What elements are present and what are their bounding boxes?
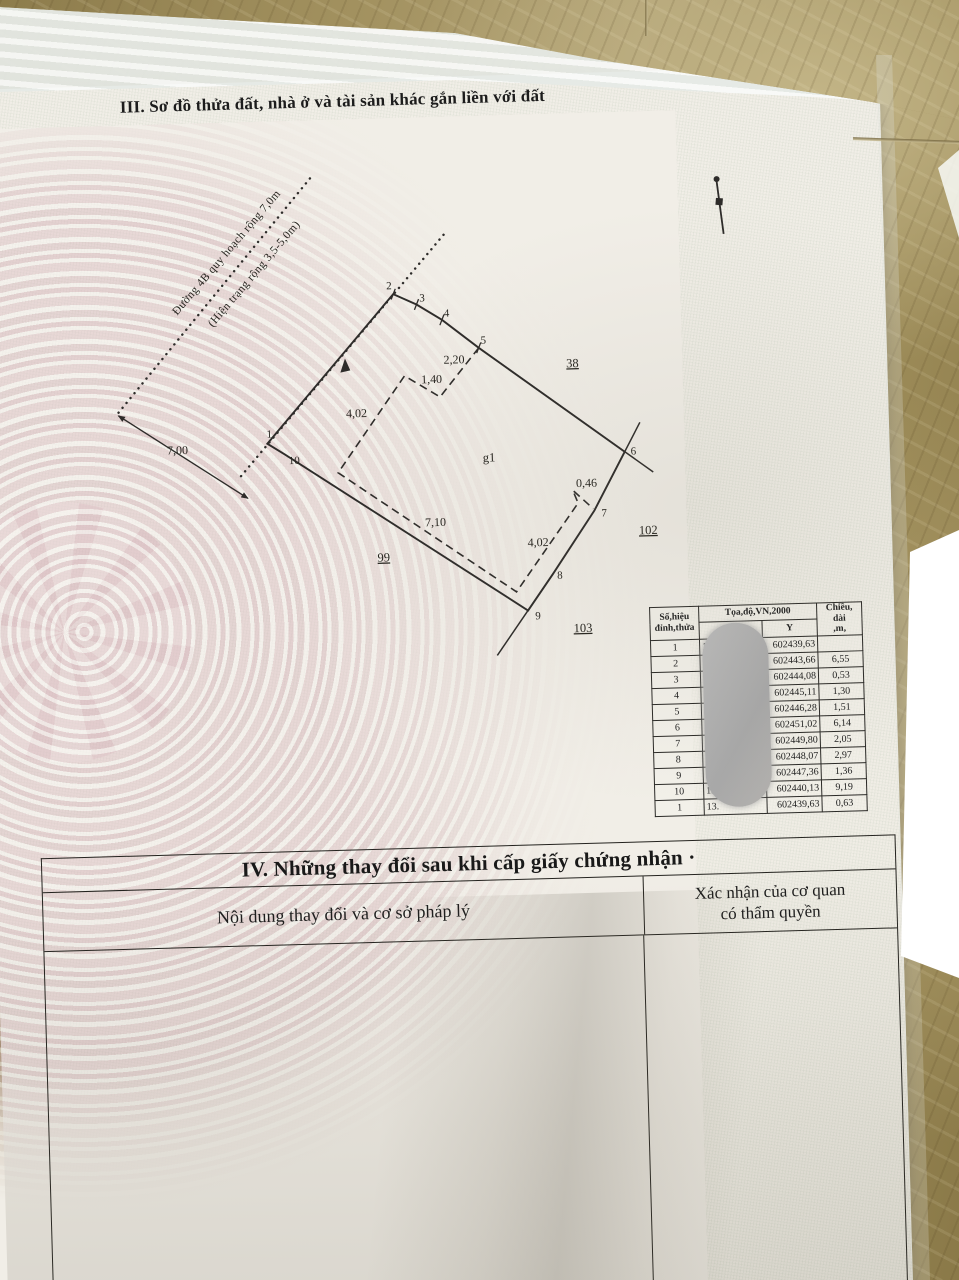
vertex-label-5: 5 — [480, 335, 486, 347]
dimension-4-02-rear: 4,02 — [527, 535, 548, 550]
vertex-label-7: 7 — [601, 507, 607, 519]
photo-of-land-certificate: III. Sơ đồ thửa đất, nhà ở và tài sản kh… — [0, 0, 959, 1280]
neighbour-plot-102: 102 — [639, 523, 658, 538]
building-label-g1: g1 — [483, 450, 496, 464]
dimension-labels: 4,02 2,20 1,40 0,46 7,10 4,02 — [344, 349, 598, 555]
dimension-4-02-front: 4,02 — [346, 406, 367, 421]
road-width-value: 7,00 — [167, 443, 188, 458]
dimension-2-20: 2,20 — [443, 352, 464, 367]
building-dashed-outline — [335, 345, 596, 597]
section4-column-divider — [643, 935, 655, 1280]
vertex-label-2: 2 — [386, 280, 392, 292]
section4-col-confirm-header: Xác nhận của cơ quan có thẩm quyền — [644, 869, 898, 934]
vertex-label-1: 1 — [266, 429, 272, 441]
vertex-label-8: 8 — [557, 570, 563, 582]
north-arrow-icon — [714, 176, 724, 234]
coord-header-vertex: Số,hiệu đỉnh,thửa — [650, 606, 700, 640]
section4-confirm-header-line2: có thẩm quyền — [720, 900, 821, 924]
vertex-label-4: 4 — [444, 308, 450, 320]
coord-header-y: Y — [762, 619, 817, 637]
section4-confirm-header-line1: Xác nhận của cơ quan — [694, 879, 845, 904]
road-status-label: (Hiện trạng rộng 3,5-5,0m) — [206, 219, 303, 330]
plot-number-labels: 99 38 102 103 g1 — [372, 354, 660, 641]
vertex-label-9: 9 — [535, 610, 541, 622]
vertex-tick-marks — [391, 286, 481, 355]
redaction-blur — [702, 622, 773, 808]
certificate-page-wrap: III. Sơ đồ thửa đất, nhà ở và tài sản kh… — [0, 63, 959, 1280]
section4-table: IV. Những thay đổi sau khi cấp giấy chứn… — [41, 834, 910, 1280]
dimension-7-10: 7,10 — [425, 515, 446, 530]
neighbour-plot-99: 99 — [377, 550, 390, 564]
dimension-1-40: 1,40 — [421, 372, 442, 387]
neighbour-plot-38: 38 — [566, 356, 579, 370]
certificate-page: III. Sơ đồ thửa đất, nhà ở và tài sản kh… — [0, 65, 915, 1280]
vertex-label-10: 10 — [289, 455, 301, 467]
coord-header-length: Chiều, dài ,m, — [816, 602, 862, 636]
dimension-0-46: 0,46 — [576, 476, 597, 491]
section4-empty-body — [44, 928, 907, 1280]
section4-title: IV. Những thay đổi sau khi cấp giấy chứn… — [241, 845, 695, 882]
neighbour-boundary-extensions — [479, 343, 659, 656]
plot-boundary-polygon — [263, 288, 629, 618]
neighbour-plot-103: 103 — [573, 621, 592, 636]
tile-grout-line-vertical — [645, 0, 648, 36]
front-edge-arrow-icon — [340, 358, 350, 372]
section4-content-header-label: Nội dung thay đổi và cơ sở pháp lý — [217, 900, 471, 928]
vertex-label-6: 6 — [631, 445, 637, 457]
road-dotted-edges — [112, 175, 450, 484]
vertex-label-3: 3 — [419, 292, 425, 304]
